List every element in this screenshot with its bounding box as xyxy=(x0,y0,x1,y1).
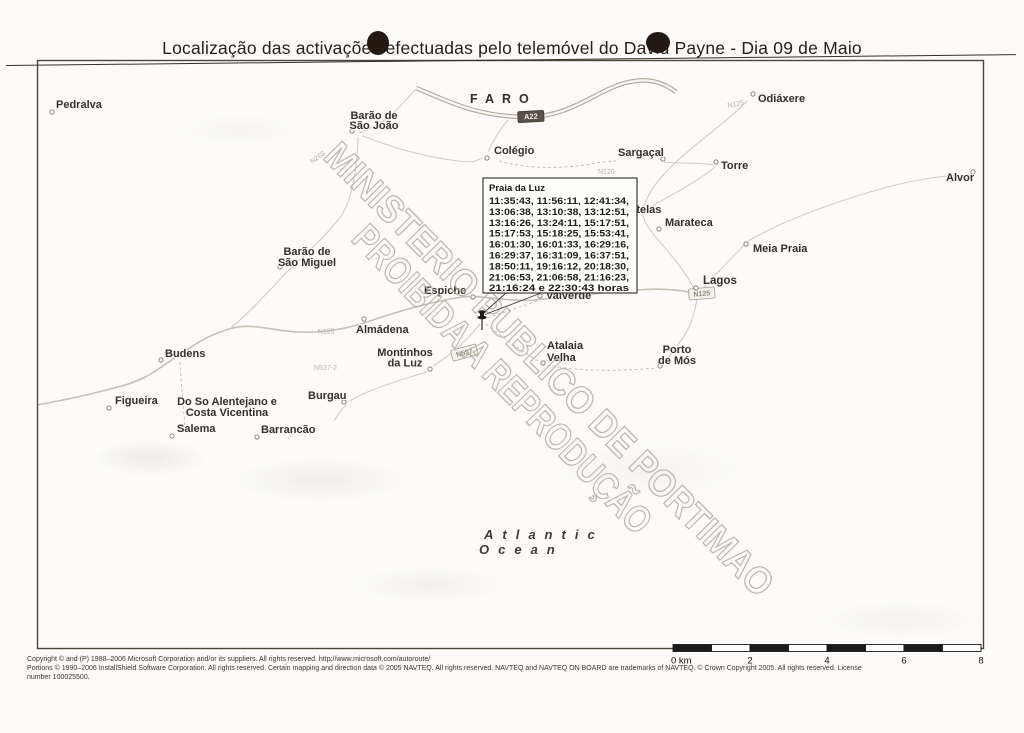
minor-road xyxy=(350,372,427,401)
ocean-label: Atlantic xyxy=(483,527,604,542)
place-label: Torre xyxy=(721,160,748,172)
scale-bar-segment xyxy=(789,645,828,652)
place-marker xyxy=(255,435,259,439)
callout-time-line: 21:16:24 e 22:30:43 horas xyxy=(489,283,629,293)
place-label: Pedralva xyxy=(56,99,103,111)
copyright-text: Copyright © and (P) 1988–2006 Microsoft … xyxy=(27,655,862,682)
scale-bar-segment xyxy=(904,645,943,652)
road-label: N125 xyxy=(318,328,335,336)
copyright-line-1: Copyright © and (P) 1988–2006 Microsoft … xyxy=(27,655,862,664)
place-marker xyxy=(751,92,755,96)
place-marker xyxy=(107,406,111,410)
minor-road xyxy=(664,162,713,165)
scale-bar-segment xyxy=(827,645,866,652)
road-shield-label: N125 xyxy=(693,290,710,298)
place-label: Barrancão xyxy=(261,424,316,436)
place-label: Lagos xyxy=(703,275,737,287)
scanned-map-page: N268N125N120N125N537-2A22N125N537 Pedral… xyxy=(0,0,1024,733)
callout-time-line: 16:29:37, 16:31:09, 16:37:51, xyxy=(489,251,629,261)
scale-bar-segment xyxy=(750,645,789,652)
ocean-label-group: AtlanticOcean xyxy=(479,527,604,557)
road-label: N537-2 xyxy=(314,365,337,372)
callout-group: Praia da Luz11:35:43, 11:56:11, 12:41:34… xyxy=(483,178,637,293)
callout-time-line: 16:01:30, 16:01:33, 16:29:16, xyxy=(489,240,629,250)
ocean-label: Ocean xyxy=(479,542,564,557)
scale-bar-label: 8 xyxy=(978,656,983,667)
road-label: N125 xyxy=(727,100,745,110)
place-marker xyxy=(428,367,432,371)
road-label: N120 xyxy=(598,169,615,176)
place-label: Odiáxere xyxy=(758,93,805,105)
place-label: Figueira xyxy=(115,395,159,407)
place-label: Barão deSão João xyxy=(350,110,399,132)
place-marker xyxy=(485,156,489,160)
punch-hole-right xyxy=(646,32,670,53)
place-label: Salema xyxy=(177,423,216,435)
dashed-road xyxy=(180,362,185,426)
callout-time-line: 11:35:43, 11:56:11, 12:41:34, xyxy=(489,196,629,206)
scale-bar-segment xyxy=(866,645,905,652)
place-marker xyxy=(657,227,661,231)
place-label: Burgau xyxy=(308,390,347,402)
motorway-road xyxy=(416,80,676,117)
place-marker xyxy=(50,110,54,114)
punch-hole-left xyxy=(367,31,389,55)
place-label: Portode Mós xyxy=(658,344,696,367)
place-label: Do So Alentejano eCosta Vicentina xyxy=(177,396,277,419)
place-marker xyxy=(744,242,748,246)
place-label: Colégio xyxy=(494,145,535,157)
pushpin-icon xyxy=(477,316,486,319)
place-label: Barão deSão Miguel xyxy=(278,246,336,269)
place-marker xyxy=(538,294,542,298)
motorway-road xyxy=(416,80,676,117)
place-marker xyxy=(694,286,698,290)
scale-bar-label: 6 xyxy=(901,656,906,667)
callout-time-line: 18:50:11, 19:16:12, 20:18:30, xyxy=(489,261,629,271)
scale-bar-segment xyxy=(712,645,751,652)
callout-time-line: 15:17:53, 15:18:25, 15:53:41, xyxy=(489,229,629,239)
callout-time-line: 13:16:26, 13:24:11, 15:17:51, xyxy=(489,218,629,228)
minor-road xyxy=(643,101,747,291)
place-marker xyxy=(714,160,718,164)
place-marker xyxy=(170,434,174,438)
road-shield-label: A22 xyxy=(524,112,538,122)
minor-road xyxy=(649,167,715,208)
copyright-line-2: Portions © 1990–2006 InstallShield Softw… xyxy=(27,664,862,673)
copyright-line-3: number 100025500. xyxy=(27,673,862,682)
place-marker xyxy=(362,317,366,321)
minor-road xyxy=(363,136,482,162)
callout-time-line: 21:06:53, 21:06:58, 21:16:23, xyxy=(489,272,629,282)
minor-road xyxy=(334,405,346,421)
scale-bar-segment xyxy=(673,645,712,652)
place-label: Budens xyxy=(165,348,205,360)
place-label: Montinhosda Luz xyxy=(377,347,433,370)
place-label: FARO xyxy=(470,92,537,106)
minor-road xyxy=(747,175,970,242)
callout-title: Praia da Luz xyxy=(489,183,545,194)
scale-bar-segment xyxy=(943,645,982,652)
place-label: Almádena xyxy=(356,324,409,336)
dashed-road xyxy=(499,161,616,167)
place-label: Sargaçal xyxy=(618,147,664,159)
place-label: Meia Praia xyxy=(753,243,808,255)
place-marker xyxy=(159,358,163,362)
place-label: Marateca xyxy=(665,217,714,229)
callout-time-line: 13:06:38, 13:10:38, 13:12:51, xyxy=(489,207,629,217)
place-label: Alvor xyxy=(946,172,975,184)
map-canvas: N268N125N120N125N537-2A22N125N537 Pedral… xyxy=(0,0,1024,733)
